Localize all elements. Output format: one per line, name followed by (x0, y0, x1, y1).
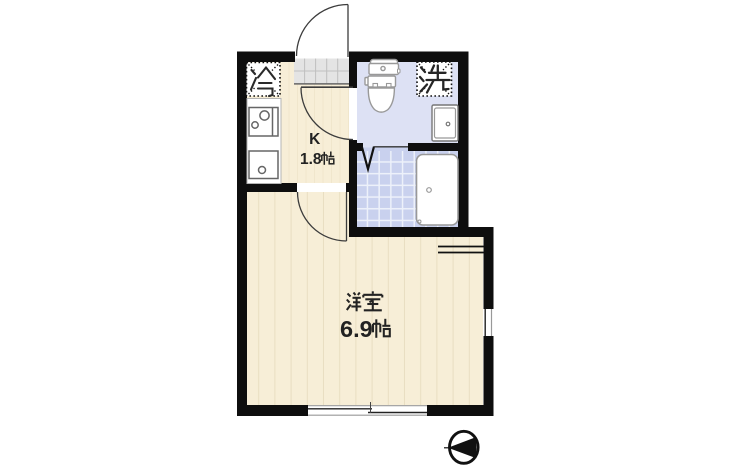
svg-text:1.8: 1.8 (300, 151, 322, 168)
svg-text:K: K (309, 131, 321, 148)
svg-text:6.9: 6.9 (340, 316, 373, 342)
